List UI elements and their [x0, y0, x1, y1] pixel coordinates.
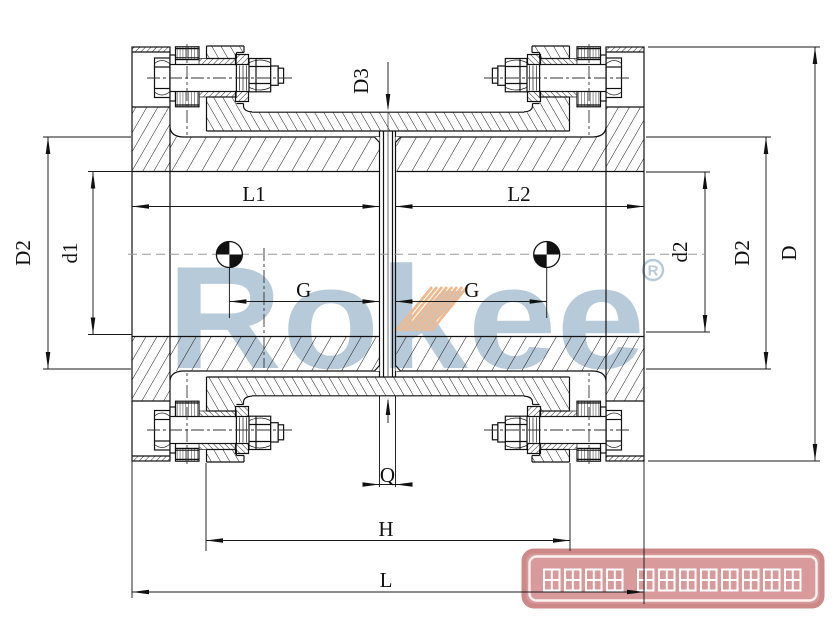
- svg-text:d2: d2: [668, 242, 692, 263]
- svg-text:L1: L1: [242, 182, 265, 206]
- svg-text:D: D: [777, 245, 801, 260]
- svg-text:G: G: [464, 278, 479, 302]
- svg-text:D2: D2: [11, 240, 35, 266]
- svg-text:D3: D3: [349, 68, 373, 94]
- svg-text:R: R: [648, 263, 659, 280]
- svg-text:Q: Q: [380, 463, 395, 487]
- svg-text:D2: D2: [730, 240, 754, 266]
- svg-text:G: G: [296, 278, 311, 302]
- svg-text:H: H: [378, 517, 393, 541]
- svg-text:L: L: [380, 568, 393, 592]
- svg-text:L2: L2: [507, 182, 530, 206]
- svg-text:d1: d1: [58, 243, 82, 264]
